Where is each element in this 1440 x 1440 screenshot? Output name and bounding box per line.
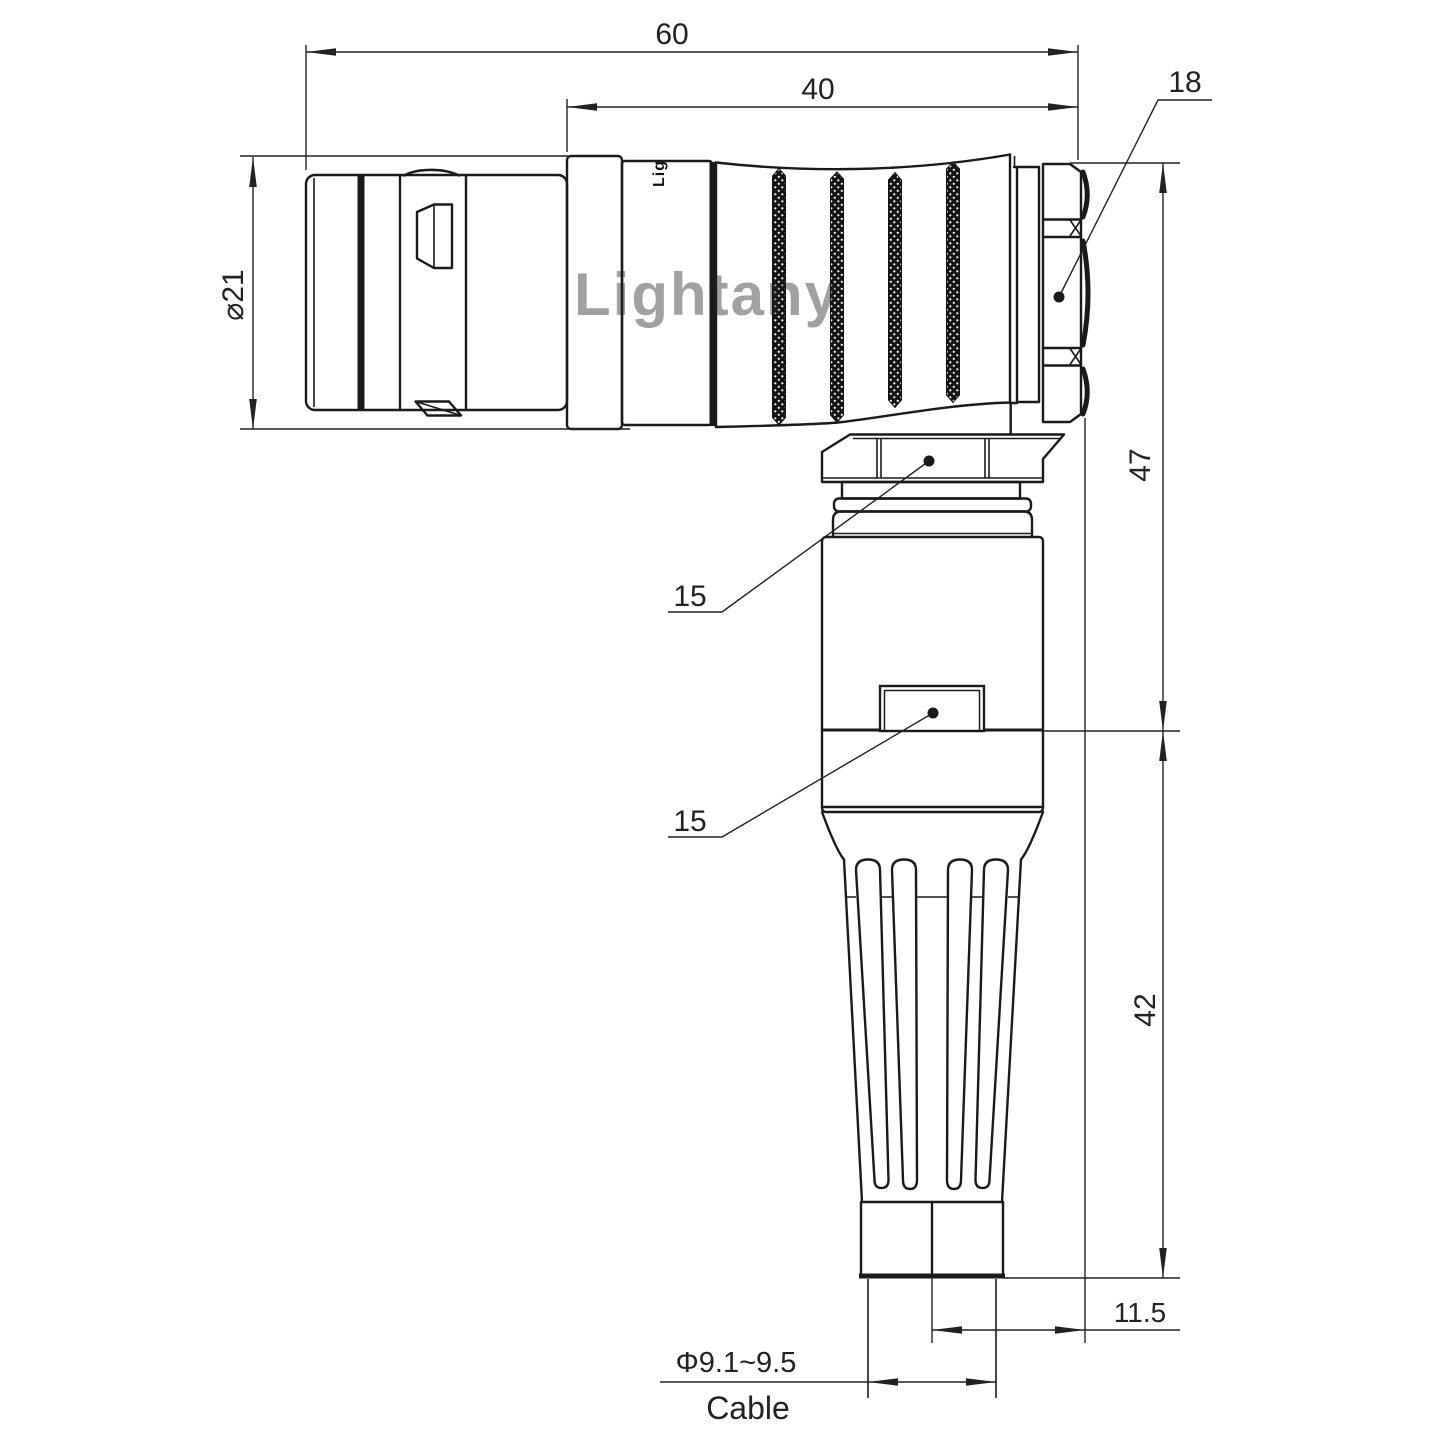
nut-face-arc-3 <box>1083 369 1087 414</box>
nut-face-arc-1 <box>1083 172 1087 217</box>
dimension-lines <box>253 52 1163 1382</box>
slot-3 <box>947 860 972 1190</box>
connector-part: Lig <box>306 155 1088 1399</box>
knurl-top-edge <box>716 155 1010 170</box>
knurl-bottom-edge <box>716 403 1010 428</box>
front-sleeve-body <box>306 175 567 410</box>
dim-rear-length: 40 <box>801 73 834 106</box>
nut-face-arcs <box>1083 172 1088 414</box>
leader-15b-dot <box>928 708 939 719</box>
label-mating-nut-size: 18 <box>1168 66 1201 99</box>
dim-lower-height: 42 <box>1129 993 1162 1026</box>
slot-2 <box>892 860 917 1190</box>
leader-18-dot <box>1054 292 1065 303</box>
dim-overall-length: 60 <box>655 18 688 51</box>
sleeve-dark-band <box>358 175 365 410</box>
backshell-body <box>822 537 1043 812</box>
label-coupling-nut-size: 15 <box>673 580 706 613</box>
knurl-band-3 <box>889 173 902 408</box>
slot-4 <box>976 860 1009 1189</box>
washer <box>1017 167 1039 402</box>
rear-hex-nut <box>1011 164 1088 435</box>
front-sleeve <box>306 170 567 416</box>
hex-chamfer-marks <box>1070 220 1081 365</box>
connector-drawing-svg: Lig <box>0 0 1440 1440</box>
nut-face-arc-2 <box>1083 241 1088 345</box>
brand-mark-text: Lig <box>651 160 668 187</box>
knurl-band-4 <box>947 162 960 403</box>
neck <box>842 482 1020 499</box>
dim-axis-offset: 11.5 <box>1114 1297 1166 1328</box>
watermark-text: Lightany <box>574 261 840 328</box>
coupling-nut <box>822 435 1064 483</box>
dim-upper-height: 47 <box>1124 448 1157 481</box>
technical-drawing-canvas: Lig <box>0 0 1440 1440</box>
dim-cable-diameter: Φ9.1~9.5 <box>676 1347 797 1379</box>
strain-relief-slots <box>856 860 1008 1190</box>
slot-1 <box>856 860 889 1189</box>
leader-15a-dot <box>924 456 935 467</box>
label-backshell-size: 15 <box>673 805 706 838</box>
dim-plug-diameter: ⌀21 <box>217 269 250 320</box>
down-leg <box>822 435 1064 813</box>
label-cable: Cable <box>706 1390 790 1426</box>
